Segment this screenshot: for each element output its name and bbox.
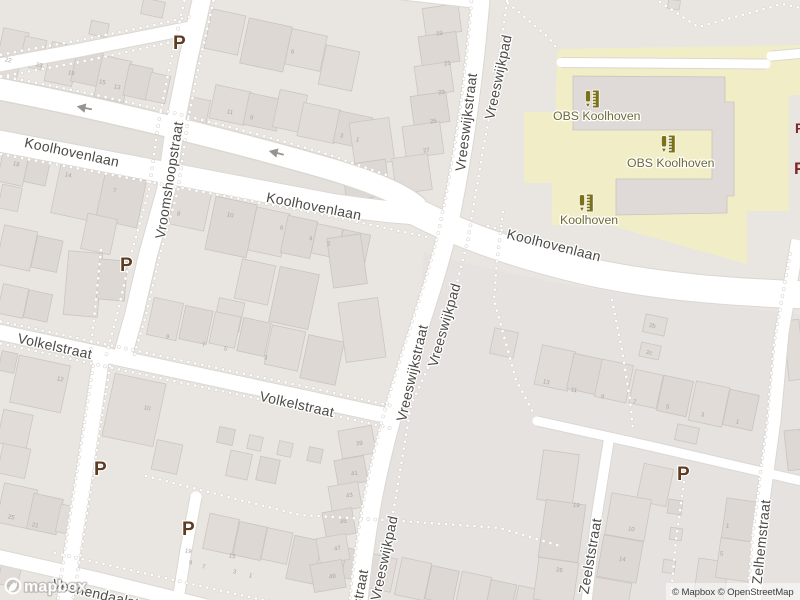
svg-text:Koolhoven: Koolhoven (560, 213, 618, 227)
svg-text:P: P (120, 255, 133, 276)
svg-text:© Mapbox © OpenStreetMap: © Mapbox © OpenStreetMap (672, 587, 794, 598)
svg-text:mapbox: mapbox (24, 579, 87, 596)
svg-text:P: P (795, 120, 800, 136)
svg-text:P: P (794, 159, 800, 178)
svg-text:P: P (182, 519, 195, 540)
svg-text:P: P (677, 464, 690, 485)
svg-text:P: P (173, 33, 186, 54)
svg-text:OBS Koolhoven: OBS Koolhoven (553, 109, 641, 123)
svg-text:P: P (94, 459, 107, 480)
svg-text:OBS Koolhoven: OBS Koolhoven (627, 156, 715, 170)
